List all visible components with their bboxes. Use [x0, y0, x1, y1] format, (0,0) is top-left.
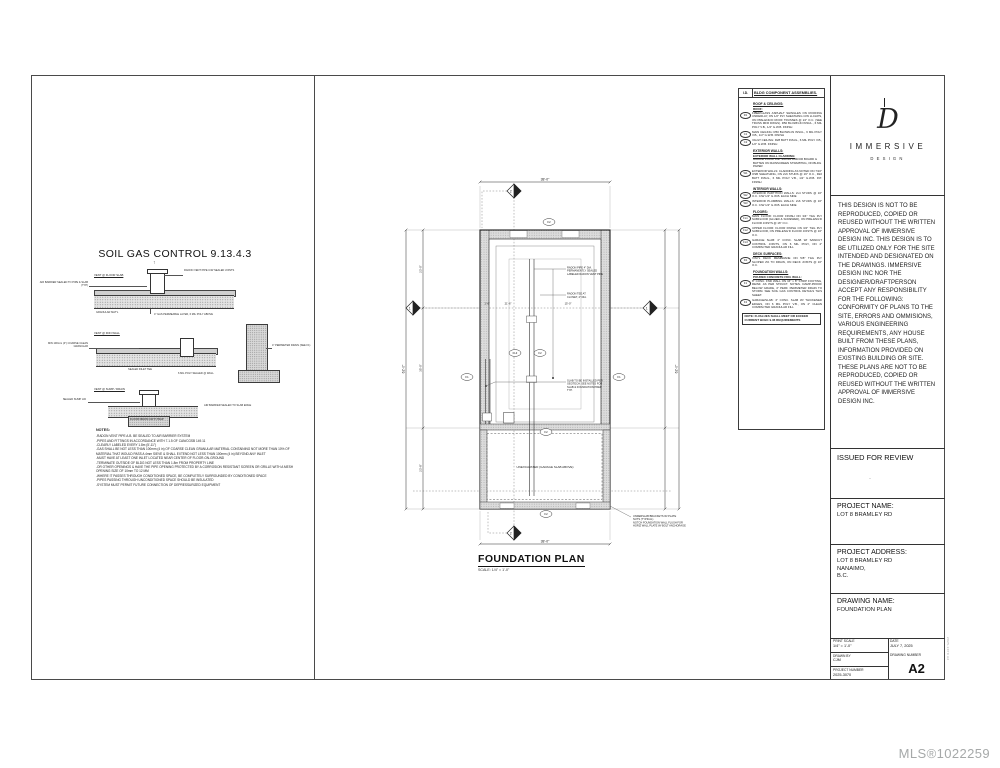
detail1-pipe-cap: [147, 269, 168, 274]
assembly-id-bubble: FL1: [740, 215, 752, 222]
detail1-gravel-band: [94, 295, 234, 309]
project-address-box: PROJECT ADDRESS: LOT 8 BRAMLEY RD NANAIM…: [831, 544, 945, 594]
drawing-number-cell: DRAWING NUMBER A2: [888, 652, 945, 679]
detail2-note-a: SEALED INLET TEE: [128, 368, 168, 371]
detail2-gravel-band: [96, 353, 216, 367]
drawing-number-value: A2: [888, 661, 945, 676]
title-block: D IMMERSIVE DESIGN THIS DESIGN IS NOT TO…: [830, 76, 945, 679]
dim-left: 62'-0": [401, 364, 405, 373]
assembly-id-bubble: W1: [740, 170, 752, 177]
disclaimer-text: THIS DESIGN IS NOT TO BE REPRODUCED, COP…: [831, 195, 945, 413]
note-line: -GAS SHALL BE NOT LESS THAN 100mm (4 in)…: [96, 447, 302, 456]
legend-item: FL1MAIN FLOOR: FLOOR FINISH ON 3/4" T&G …: [739, 215, 823, 226]
legend-header: I.D. BLDG COMPONENT ASSEMBLIES.: [739, 89, 824, 98]
legend-title: BLDG COMPONENT ASSEMBLIES.: [753, 89, 824, 97]
note-line: -SYSTEM MUST PERMIT FUTURE CONNECTION OF…: [96, 483, 302, 487]
soil-gas-notes: NOTES: -RADON VENT PIPE A.B. BE SEALED T…: [96, 428, 302, 487]
dim-left-seg2: 35'-0": [418, 364, 422, 372]
svg-text:1: 1: [409, 307, 411, 311]
assembly-id-bubble: D1: [740, 257, 752, 264]
print-scale-cell: PRINT SCALE 1/4" = 1'-0": [831, 638, 888, 653]
assembly-id-bubble: C1: [740, 131, 752, 138]
project-address-line1: LOT 8 BRAMLEY RD: [831, 556, 945, 566]
print-scale-label: PRINT SCALE: [833, 639, 886, 643]
detail3-caption: VENT @ SUMP / DRAIN: [94, 387, 125, 391]
section-marker-top: 2: [507, 184, 521, 198]
badge-left: F1: [465, 375, 469, 379]
detail1-leader-right: [164, 275, 183, 276]
plan-title: FOUNDATION PLAN: [478, 553, 585, 567]
legend-item: F18" CONC. FND WALL ON 16" x 8" STRIP FO…: [739, 280, 823, 298]
svg-text:1: 1: [646, 307, 648, 311]
svg-text:TYP.: TYP.: [567, 388, 573, 392]
note-line: -OR OTHER OPENINGS & HAVE THE PIPE OPENI…: [96, 465, 302, 474]
callout-radon-pipe: RADON PIPE 4" DIA. PERMANENTLY SEALED LA…: [534, 265, 603, 379]
svg-text:2: 2: [510, 532, 512, 536]
print-footer-vertical-text: 2025-3070 A2: [946, 637, 950, 683]
print-scale-value: 1/4" = 1'-0": [833, 644, 886, 648]
legend-item: C1MAIN CEILING: R50 BLOWN-IN INSUL., 6 M…: [739, 131, 823, 138]
soil-gas-title: SOIL GAS CONTROL 9.13.4.3: [52, 248, 298, 260]
detail1-caption: VENT @ FLOOR SLAB: [94, 273, 123, 277]
title-block-grid: PRINT SCALE 1/4" = 1'-0" DRAWN BY CJM PR…: [831, 638, 945, 679]
detail1-leader-left: [89, 286, 147, 287]
detail2-leader-right: [266, 348, 272, 349]
svg-text:2: 2: [510, 190, 512, 194]
drawn-by-label: DRAWN BY: [833, 654, 886, 658]
detail1-vent-pipe: [150, 272, 165, 294]
project-address-label: PROJECT ADDRESS:: [831, 544, 945, 556]
project-number-value: 2025-3070: [833, 673, 886, 677]
plan-callouts: RADON PIPE 4" DIA. PERMANENTLY SEALED LA…: [485, 265, 686, 527]
date-value: JULY 7, 2025: [890, 644, 943, 648]
soil-gas-panel: SOIL GAS CONTROL 9.13.4.3 VENT @ FLOOR S…: [32, 76, 315, 679]
drawn-by-value: CJM: [833, 658, 886, 662]
mls-watermark: MLS®1022259: [862, 746, 990, 761]
dim-right: 62'-0": [674, 364, 678, 373]
callout-bracket-note: UNDERSLAB BRACKETS W/ PLATE NUTS (TYPICA…: [610, 506, 686, 528]
plan-panel: 38'-0" 38'-0" 62'-0" 62'-0" 23'-0" 35'-0…: [315, 76, 830, 679]
badge-low: F2: [544, 430, 548, 434]
callout-slab-note: SLAB TO BE INSTALLED PER GEOTECH. SEE NO…: [485, 378, 603, 392]
dim-left-seg1: 23'-0": [418, 265, 422, 273]
notes-label: NOTES:: [96, 428, 302, 433]
detail2-note-b: 6 MIL POLY SEALED @ WALL: [178, 372, 230, 375]
detail2-leader-left: [89, 348, 139, 349]
project-address-line2: NANAIMO,: [831, 566, 945, 574]
brand-name: IMMERSIVE: [831, 142, 945, 151]
issued-status: ISSUED FOR REVIEW: [831, 448, 945, 467]
assembly-id-bubble: FL3: [740, 239, 752, 246]
assembly-id-bubble: W3: [740, 200, 752, 207]
assembly-id-bubble: C2: [740, 139, 752, 146]
legend-note: NOTE: R-VALUES SHALL MEET OR EXCEED CURR…: [742, 313, 821, 326]
section-marker-left: 1: [406, 301, 420, 315]
legend-item: F2GARAGE/SLAB: 4" CONC. SLAB W/ THICKENE…: [739, 299, 823, 310]
project-address-line3: B.C.: [831, 573, 945, 581]
interior-beams: [483, 259, 537, 496]
dim-small-3: 15'-0": [565, 302, 572, 306]
legend-item: R1FIBERGLASS ASPHALT SHINGLES ON ROOFING…: [739, 112, 823, 130]
project-number-label: PROJECT NUMBER: [833, 668, 886, 672]
detail1-right-note: RADON VENT PIPE C/W SEALED JOINTS: [184, 269, 250, 272]
detail1-note-b: 4" GAS PERMEABLE LAYER, 6 MIL POLY ABOVE: [154, 313, 216, 316]
svg-text:LABELED RADON VENT PIPE: LABELED RADON VENT PIPE: [567, 272, 603, 276]
dim-left-seg3: 23'-8": [418, 464, 422, 472]
drawing-sheet: SOIL GAS CONTROL 9.13.4.3 VENT @ FLOOR S…: [31, 75, 945, 680]
legend-section-heading: EXTERIOR WALLS:: [753, 149, 823, 153]
detail3-right-note: AIR BARRIER SEALED TO SLAB EDGE: [204, 404, 258, 407]
assembly-id-bubble: F1: [740, 280, 752, 287]
logo-box: D IMMERSIVE DESIGN: [831, 76, 945, 196]
detail3-pipe-cap: [139, 390, 159, 395]
brand-subname: DESIGN: [831, 156, 945, 161]
legend-id-header: I.D.: [739, 89, 753, 97]
legend-body: ROOF & CEILINGS: ROOF: R1FIBERGLASS ASPH…: [739, 98, 824, 327]
detail1-note-a: GRANULAR MAT'L: [96, 311, 136, 314]
badge-m1: FL3: [513, 351, 518, 355]
dim-small-2: 21'-6": [505, 302, 512, 306]
legend-item: C2VAULT CEILING: R28 BATT INSUL., 6 MIL …: [739, 139, 823, 146]
drawing-name-box: DRAWING NAME: FOUNDATION PLAN: [831, 593, 945, 639]
section-lines: [413, 191, 671, 533]
section-marker-bottom: 2: [507, 526, 521, 540]
detail3-left-note: SEALED SUMP LID: [40, 398, 86, 401]
drawing-number-label: DRAWING NUMBER: [888, 652, 945, 658]
immersive-design-logo-icon: D: [831, 104, 945, 135]
dim-bottom: 38'-0": [541, 539, 550, 543]
issued-box: ISSUED FOR REVIEW ·: [831, 448, 945, 499]
detail2-caption: VENT @ FDN WALL: [94, 331, 120, 335]
detail2-foundation-wall: [246, 324, 268, 372]
project-name-box: PROJECT NAME: LOT 8 BRAMLEY RD: [831, 498, 945, 545]
project-name-value: LOT 8 BRAMLEY RD: [831, 510, 945, 520]
plan-scale: SCALE: 1/4" = 1'-0": [478, 568, 509, 572]
detail3-note-a: FLOOR DRAIN C/W P-TRAP: [130, 418, 170, 421]
legend-item: D1VINYL DECK MEMBRANE ON 5/8" T&G PLY SL…: [739, 257, 823, 268]
badge-top: F2: [547, 220, 551, 224]
title-block-grid-left: PRINT SCALE 1/4" = 1'-0" DRAWN BY CJM PR…: [831, 638, 889, 679]
legend-item: FL3GARAGE SLAB: 4" CONC. SLAB W/ SAWCUT …: [739, 239, 823, 250]
detail2-left-note: MIN 100mm (4") COARSE CLEAN GRANULAR: [34, 342, 88, 348]
legend-section-heading: FOUNDATION WALLS:: [753, 270, 823, 274]
assembly-id-bubble: W2: [740, 192, 752, 199]
legend-section-heading: ROOF & CEILINGS:: [753, 102, 823, 106]
detail1-leader-b: [150, 309, 151, 314]
legend-section-heading: INTERIOR WALLS:: [753, 187, 823, 191]
date-label: DATE: [890, 639, 943, 643]
dim-top: 38'-0": [541, 177, 550, 181]
detail1-left-note: AIR BARRIER SEALED TO PIPE & SLAB (TYP): [36, 281, 88, 287]
assembly-id-bubble: R1: [740, 112, 752, 119]
badge-bottom: F2: [544, 512, 548, 516]
component-assemblies-legend: I.D. BLDG COMPONENT ASSEMBLIES. ROOF & C…: [738, 88, 825, 430]
detail1-flow-arrow-icon: ↑: [153, 260, 156, 266]
assembly-id-bubble: F2: [740, 299, 752, 306]
pen-mark: ·: [869, 476, 871, 482]
project-name-label: PROJECT NAME:: [831, 498, 945, 510]
detail2-footing: [238, 370, 280, 383]
legend-item: FL2UPPER FLOOR: FLOOR FINISH ON 3/4" T&G…: [739, 227, 823, 238]
badge-right: F1: [617, 375, 621, 379]
badge-m2: F2: [538, 351, 542, 355]
assembly-id-bubble: FL2: [740, 227, 752, 234]
legend-item: W1EXTERIOR WALLS: CLADDING AS NOTED ON 7…: [739, 170, 823, 184]
project-number-cell: PROJECT NUMBER 2025-3070: [831, 667, 888, 679]
legend-item: W2INTERIOR PARTITION WALLS: 2x4 STUDS @ …: [739, 192, 823, 199]
svg-text:HORIZ WALL PLATE W/ BOLT ANCHO: HORIZ WALL PLATE W/ BOLT ANCHORAGE: [633, 524, 686, 528]
drawing-name-label: DRAWING NAME:: [831, 593, 945, 605]
date-cell: DATE JULY 7, 2025: [888, 638, 945, 652]
legend-item: W3INTERIOR PLUMBING WALLS: 2x6 STUDS @ 1…: [739, 200, 823, 207]
legend-intro: HARDIE PLANK LAP SIDING AND/OR BOARD & B…: [753, 158, 823, 168]
drawn-by-cell: DRAWN BY CJM: [831, 653, 888, 668]
callout-radon-tee: RADON TEE AT CLOSET, 4" DIA.: [540, 292, 587, 299]
section-marker-right: 1: [643, 301, 657, 315]
detail2-vent-pipe: [180, 338, 194, 357]
dim-small-1: 1'-6": [484, 302, 489, 306]
drawing-name-value: FOUNDATION PLAN: [831, 605, 945, 615]
unexcavated-label: UNEXCAVATED (GARAGE SLAB ABOVE): [516, 465, 573, 469]
detail3-leader-left: [88, 402, 140, 403]
disclaimer-box: THIS DESIGN IS NOT TO BE REPRODUCED, COP…: [831, 195, 945, 449]
svg-text:CLOSET, 4" DIA.: CLOSET, 4" DIA.: [567, 295, 587, 299]
detail2-right-note: 4" PERIMETER DRAIN (SEE F1): [272, 344, 312, 347]
